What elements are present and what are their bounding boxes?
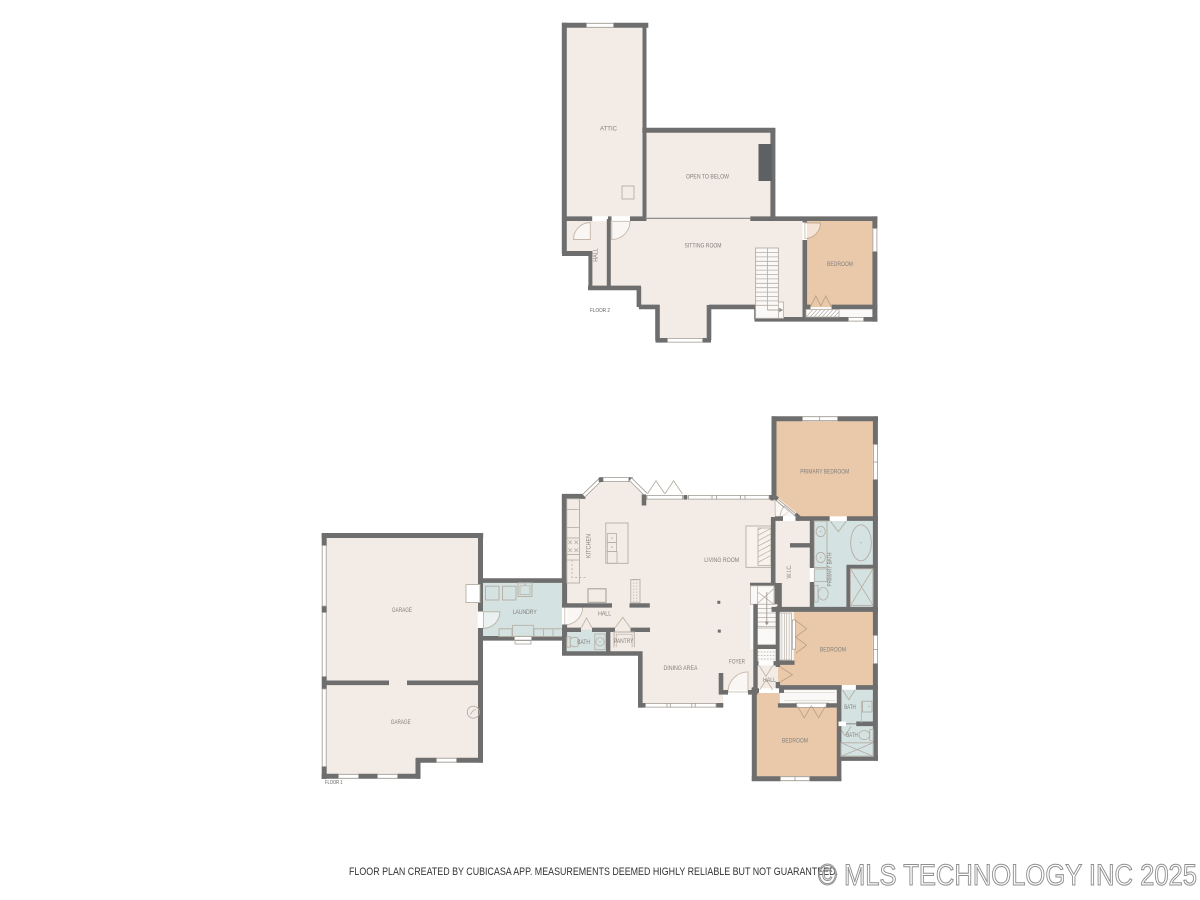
- svg-text:HALL: HALL: [598, 611, 611, 618]
- svg-text:BEDROOM: BEDROOM: [782, 737, 808, 744]
- svg-text:BATH: BATH: [577, 639, 590, 646]
- svg-text:SITTING ROOM: SITTING ROOM: [685, 243, 722, 250]
- svg-text:PRIMARY BEDROOM: PRIMARY BEDROOM: [800, 469, 849, 476]
- svg-text:FOYER: FOYER: [729, 659, 745, 666]
- svg-text:PRIMARY BATH: PRIMARY BATH: [827, 553, 834, 587]
- svg-text:GARAGE: GARAGE: [392, 607, 412, 614]
- svg-text:BATH: BATH: [846, 732, 858, 739]
- svg-text:PANTRY: PANTRY: [614, 638, 634, 645]
- svg-text:GARAGE: GARAGE: [391, 719, 411, 726]
- svg-text:KITCHEN: KITCHEN: [586, 534, 593, 558]
- svg-text:FLOOR PLAN CREATED BY CUBICASA: FLOOR PLAN CREATED BY CUBICASA APP. MEAS…: [349, 866, 838, 878]
- svg-text:LIVING ROOM: LIVING ROOM: [704, 557, 739, 564]
- svg-text:DINING AREA: DINING AREA: [664, 665, 699, 672]
- svg-text:BEDROOM: BEDROOM: [820, 647, 846, 654]
- svg-text:BEDROOM: BEDROOM: [827, 261, 853, 268]
- svg-text:BATH: BATH: [844, 704, 856, 711]
- svg-text:ATTIC: ATTIC: [600, 126, 618, 133]
- svg-text:W.I.C.: W.I.C.: [786, 564, 793, 578]
- svg-text:FLOOR 2: FLOOR 2: [590, 308, 610, 314]
- svg-text:OPEN TO BELOW: OPEN TO BELOW: [686, 173, 729, 180]
- svg-text:HALL: HALL: [593, 248, 600, 262]
- svg-text:LAUNDRY: LAUNDRY: [513, 609, 537, 616]
- svg-text:© MLS TECHNOLOGY INC 2025: © MLS TECHNOLOGY INC 2025: [818, 859, 1197, 892]
- svg-text:HALL: HALL: [763, 677, 776, 684]
- svg-text:FLOOR 1: FLOOR 1: [325, 780, 343, 786]
